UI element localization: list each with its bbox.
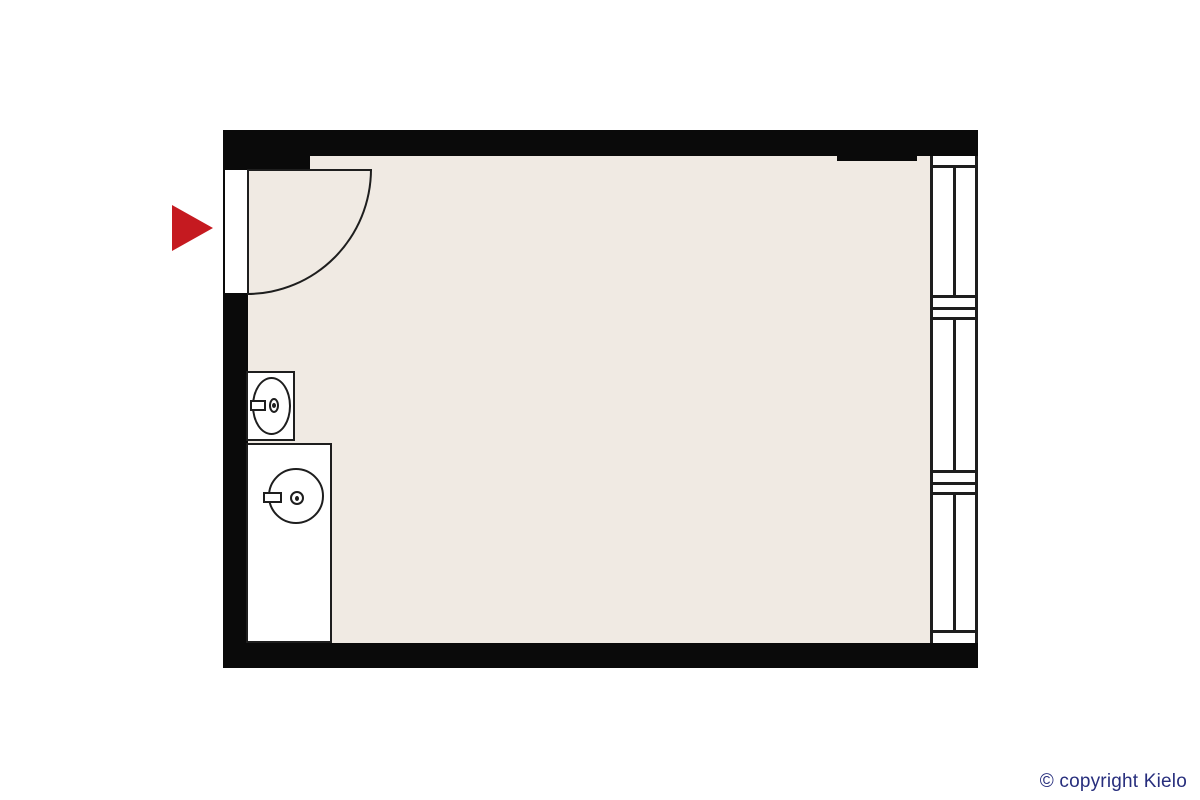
sink-tap-icon bbox=[263, 492, 282, 503]
window-strip bbox=[930, 156, 978, 643]
window-mullion-line bbox=[933, 482, 975, 485]
washbasin-tap-icon bbox=[250, 400, 266, 411]
wall-top-right-segment bbox=[837, 130, 917, 161]
copyright-text: © copyright Kielo bbox=[1040, 771, 1187, 793]
window-mullion-line bbox=[933, 307, 975, 310]
washbasin-drain-icon bbox=[269, 398, 279, 413]
floorplan-canvas: © copyright Kielo bbox=[0, 0, 1200, 800]
entrance-arrow-icon bbox=[172, 205, 213, 251]
window-pane-divider-2 bbox=[953, 320, 956, 470]
window-pane-divider-1 bbox=[953, 168, 956, 295]
sink-drain-dot bbox=[295, 496, 299, 501]
wall-top bbox=[223, 130, 930, 156]
washbasin bbox=[246, 371, 295, 441]
wall-bottom bbox=[223, 643, 978, 668]
window-pane-divider-3 bbox=[953, 495, 956, 630]
door-opening bbox=[225, 170, 248, 293]
window-mullion-line bbox=[933, 470, 975, 473]
sink-unit bbox=[246, 443, 332, 643]
washbasin-drain-dot bbox=[272, 403, 276, 408]
sink-drain-icon bbox=[290, 491, 304, 505]
wall-above-window bbox=[930, 130, 978, 156]
window-frame-line bbox=[933, 630, 975, 633]
window-mullion-line bbox=[933, 295, 975, 298]
